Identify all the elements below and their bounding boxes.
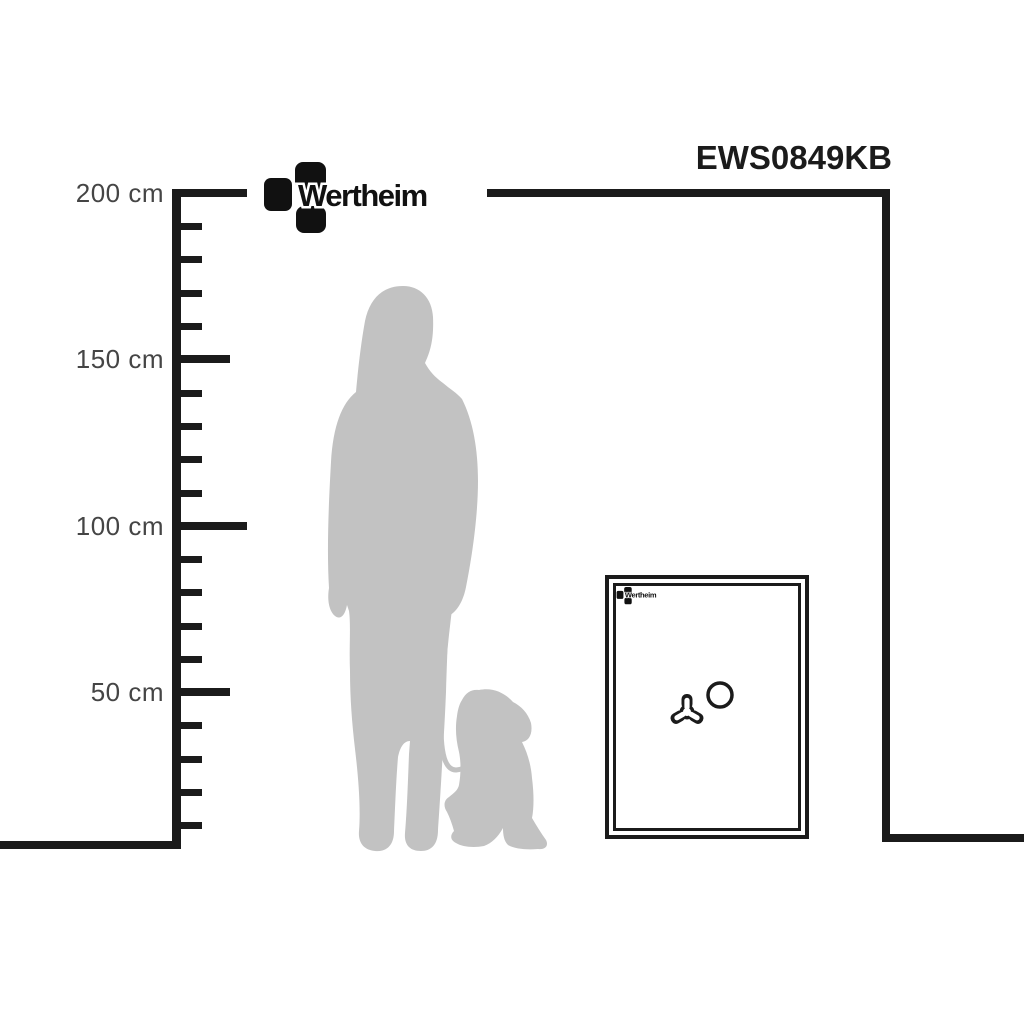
person-silhouette [328,286,478,851]
ruler-tick [172,290,202,297]
ruler-label-50cm: 50 cm [52,677,164,707]
ruler-label-150cm: 150 cm [52,344,164,374]
ruler-tick [172,756,202,763]
ruler-tick-100cm [172,522,247,530]
wertheim-logo: Wertheim [258,158,462,236]
ruler-tick [172,256,202,263]
logo-block-left [264,178,292,211]
ruler-label-100cm: 100 cm [52,511,164,541]
ruler-tick-200cm [172,189,247,197]
safe-hardware [609,579,805,835]
safe-dial-icon [708,683,732,707]
floor-line-right [882,834,1024,842]
frame-top-line [487,189,890,197]
ruler-tick [172,390,202,397]
ruler-tick [172,589,202,596]
ruler-tick [172,822,202,829]
ruler-tick [172,656,202,663]
wertheim-logo-text: Wertheim [298,178,427,213]
safe: Wertheim [605,575,809,839]
leash [441,598,473,770]
safe-handle-icon [669,694,706,726]
dog-silhouette [445,689,547,849]
ruler-tick-50cm [172,688,230,696]
ruler-label-200cm: 200 cm [52,178,164,208]
size-comparison-diagram: 200 cm 150 cm 100 cm 50 cm EWS0849KB Wer… [0,0,1024,1024]
floor-line-left [0,841,178,849]
ruler-tick [172,556,202,563]
ruler-tick [172,490,202,497]
ruler-tick [172,722,202,729]
ruler-tick [172,456,202,463]
ruler-tick [172,423,202,430]
frame-right-line [882,189,890,842]
ruler-tick [172,789,202,796]
ruler-tick [172,623,202,630]
ruler-line [172,189,181,849]
ruler-tick [172,223,202,230]
ruler-tick-150cm [172,355,230,363]
ruler-tick [172,323,202,330]
product-code-label: EWS0849KB [592,140,892,176]
